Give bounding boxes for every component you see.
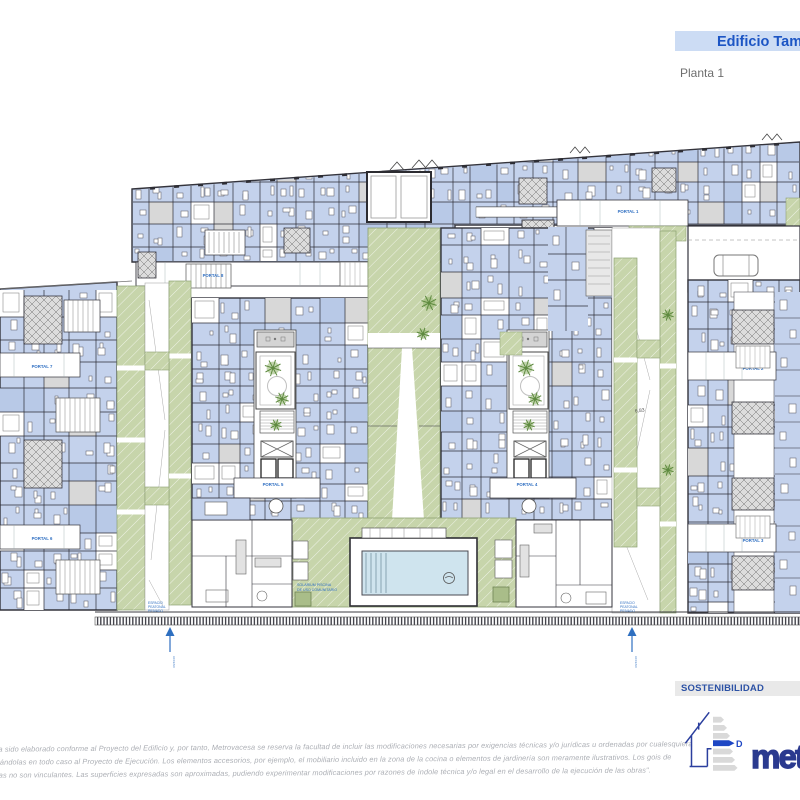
svg-text:D: D (736, 739, 743, 749)
svg-text:PRIVADO: PRIVADO (620, 609, 635, 613)
svg-text:ACCESO: ACCESO (172, 656, 176, 669)
svg-text:PORTAL 4: PORTAL 4 (517, 482, 538, 487)
svg-text:PORTAL 1: PORTAL 1 (618, 209, 639, 214)
svg-text:PORTAL 5: PORTAL 5 (263, 482, 284, 487)
svg-text:DE USO COMUNITARIO: DE USO COMUNITARIO (297, 588, 337, 592)
svg-text:met: met (751, 738, 800, 775)
svg-text:PORTAL 6: PORTAL 6 (32, 536, 53, 541)
svg-text:PORTAL 8: PORTAL 8 (203, 273, 224, 278)
svg-text:PORTAL 7: PORTAL 7 (32, 364, 53, 369)
svg-text:SOLARIUM PISCINA: SOLARIUM PISCINA (297, 583, 332, 587)
svg-text:PRIVADO: PRIVADO (148, 609, 163, 613)
svg-text:PORTAL 3: PORTAL 3 (743, 538, 764, 543)
svg-text:ACCESO: ACCESO (634, 656, 638, 669)
